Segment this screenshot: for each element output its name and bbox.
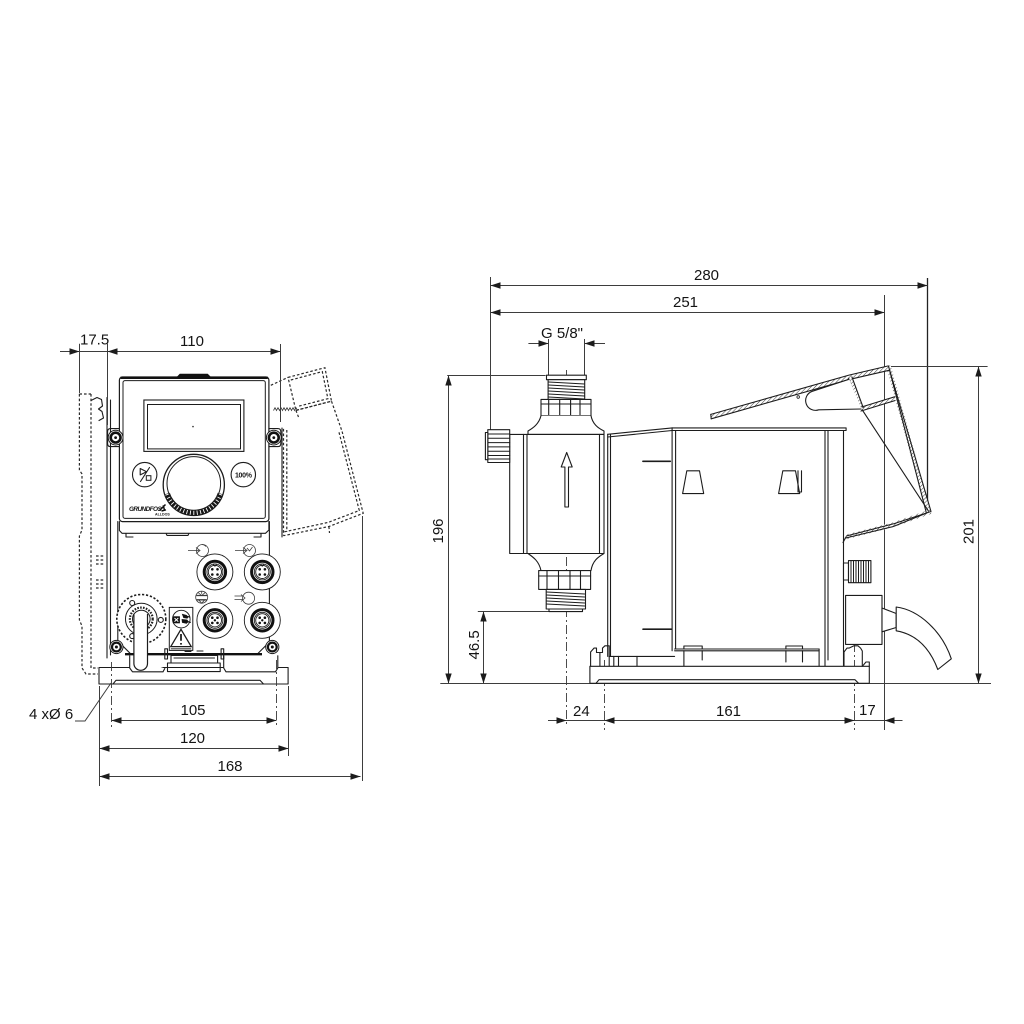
svg-text:4 xØ 6: 4 xØ 6 (29, 706, 73, 723)
svg-text:46.5: 46.5 (466, 630, 483, 659)
svg-text:280: 280 (694, 267, 719, 284)
svg-text:100%: 100% (235, 473, 253, 480)
svg-text:120: 120 (180, 730, 205, 747)
svg-text:24: 24 (573, 703, 590, 720)
svg-text:105: 105 (181, 702, 206, 719)
svg-text:201: 201 (961, 519, 978, 544)
svg-text:168: 168 (218, 758, 243, 775)
svg-text:251: 251 (673, 294, 698, 311)
svg-text:17.5: 17.5 (80, 332, 109, 349)
svg-text:196: 196 (430, 518, 447, 543)
svg-text:ALLDOS: ALLDOS (155, 513, 170, 517)
svg-text:17: 17 (859, 702, 876, 719)
svg-text:161: 161 (716, 703, 741, 720)
svg-text:110: 110 (180, 333, 204, 350)
svg-text:G 5/8": G 5/8" (541, 325, 583, 342)
